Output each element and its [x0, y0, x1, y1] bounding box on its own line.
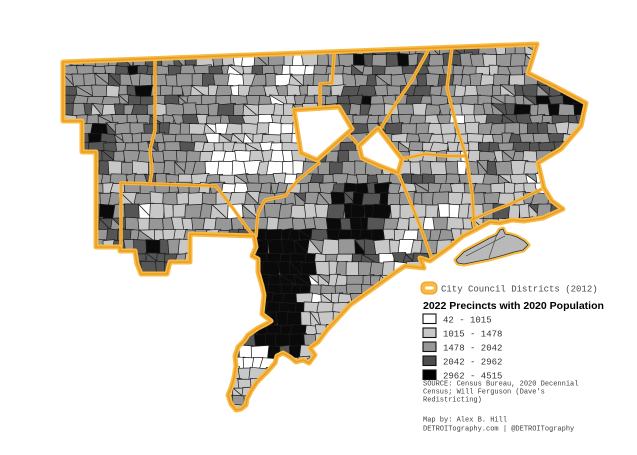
svg-text:1478 - 2042: 1478 - 2042: [443, 344, 502, 354]
svg-text:Map by: Alex B. Hill: Map by: Alex B. Hill: [423, 417, 507, 425]
svg-text:City Council Districts (2012): City Council Districts (2012): [441, 285, 598, 295]
svg-text:DETROITography.com | @DETROITo: DETROITography.com | @DETROITography: [423, 426, 574, 434]
svg-text:SOURCE: Census Bureau, 2020 De: SOURCE: Census Bureau, 2020 Decennial: [423, 381, 578, 389]
svg-text:Census; Will Ferguson (Dave's: Census; Will Ferguson (Dave's: [423, 389, 545, 397]
svg-text:Redistricting): Redistricting): [423, 397, 482, 405]
svg-text:42 - 1015: 42 - 1015: [443, 316, 492, 326]
svg-text:2022 Precincts with 2020 Popul: 2022 Precincts with 2020 Population: [423, 300, 604, 312]
svg-text:2042 - 2962: 2042 - 2962: [443, 358, 502, 368]
svg-text:1015 - 1478: 1015 - 1478: [443, 330, 502, 340]
